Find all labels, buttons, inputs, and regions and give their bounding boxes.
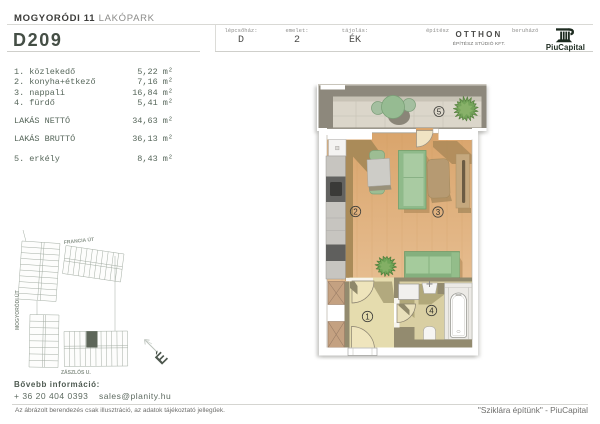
svg-text:ZÁSZLÓS U.: ZÁSZLÓS U.: [61, 368, 91, 376]
svg-text:2: 2: [353, 208, 358, 217]
svg-text:3: 3: [436, 208, 441, 217]
svg-text:MOGYORÓDI ÚT: MOGYORÓDI ÚT: [13, 290, 21, 330]
svg-text:1: 1: [365, 313, 370, 322]
svg-text:5: 5: [437, 107, 442, 116]
svg-text:É: É: [152, 349, 171, 368]
svg-text:4: 4: [429, 307, 434, 316]
svg-text:FRANCIA ÚT: FRANCIA ÚT: [63, 236, 94, 246]
